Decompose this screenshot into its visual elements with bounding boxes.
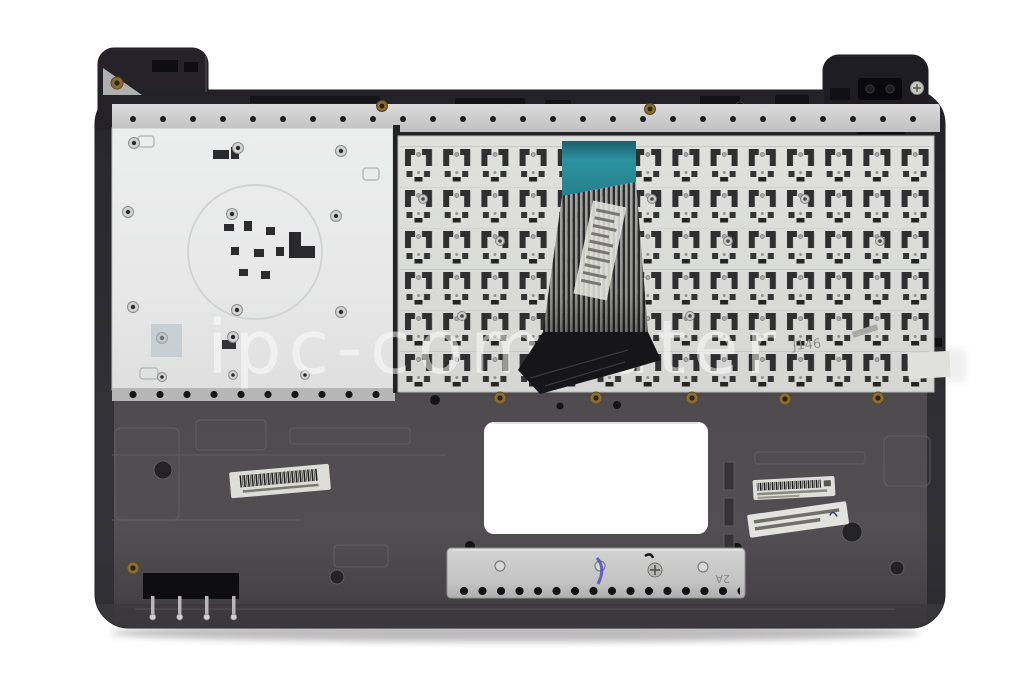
watermark: ipc-computer xyxy=(151,305,783,391)
barcode-label-right xyxy=(753,476,836,500)
bracket-stamp-text: 2A xyxy=(715,572,730,585)
front-edge-band xyxy=(95,604,945,628)
touchpad-bracket: 2A xyxy=(447,548,745,598)
laptop-topcase-photo: J146 ipc-computer xyxy=(0,0,1024,680)
hinge-screw xyxy=(911,82,924,95)
product-photo-canvas: J146 ipc-computer xyxy=(0,0,1024,680)
left-hinge-tab xyxy=(98,50,208,102)
left-edge-band xyxy=(95,130,114,630)
watermark-logo-square xyxy=(151,324,182,357)
side-ribs xyxy=(724,462,734,560)
watermark-text: ipc-computer xyxy=(207,305,783,391)
keyboard-stamp-text: J146 xyxy=(791,337,822,355)
touchpad-opening xyxy=(484,422,708,534)
tape-strip xyxy=(907,351,950,379)
